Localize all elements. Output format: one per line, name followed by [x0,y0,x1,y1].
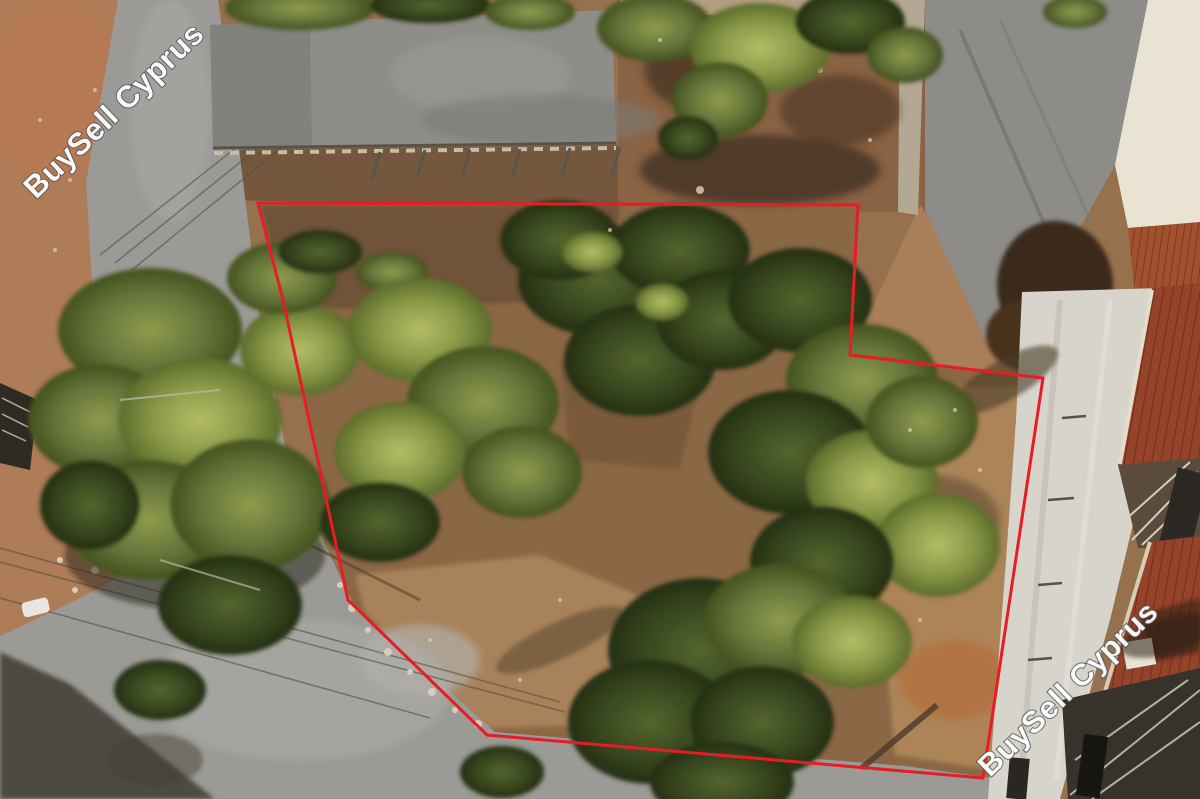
aerial-photo-canvas: BuySell Cyprus BuySell Cyprus [0,0,1200,799]
aerial-photo: BuySell Cyprus BuySell Cyprus [0,0,1200,799]
